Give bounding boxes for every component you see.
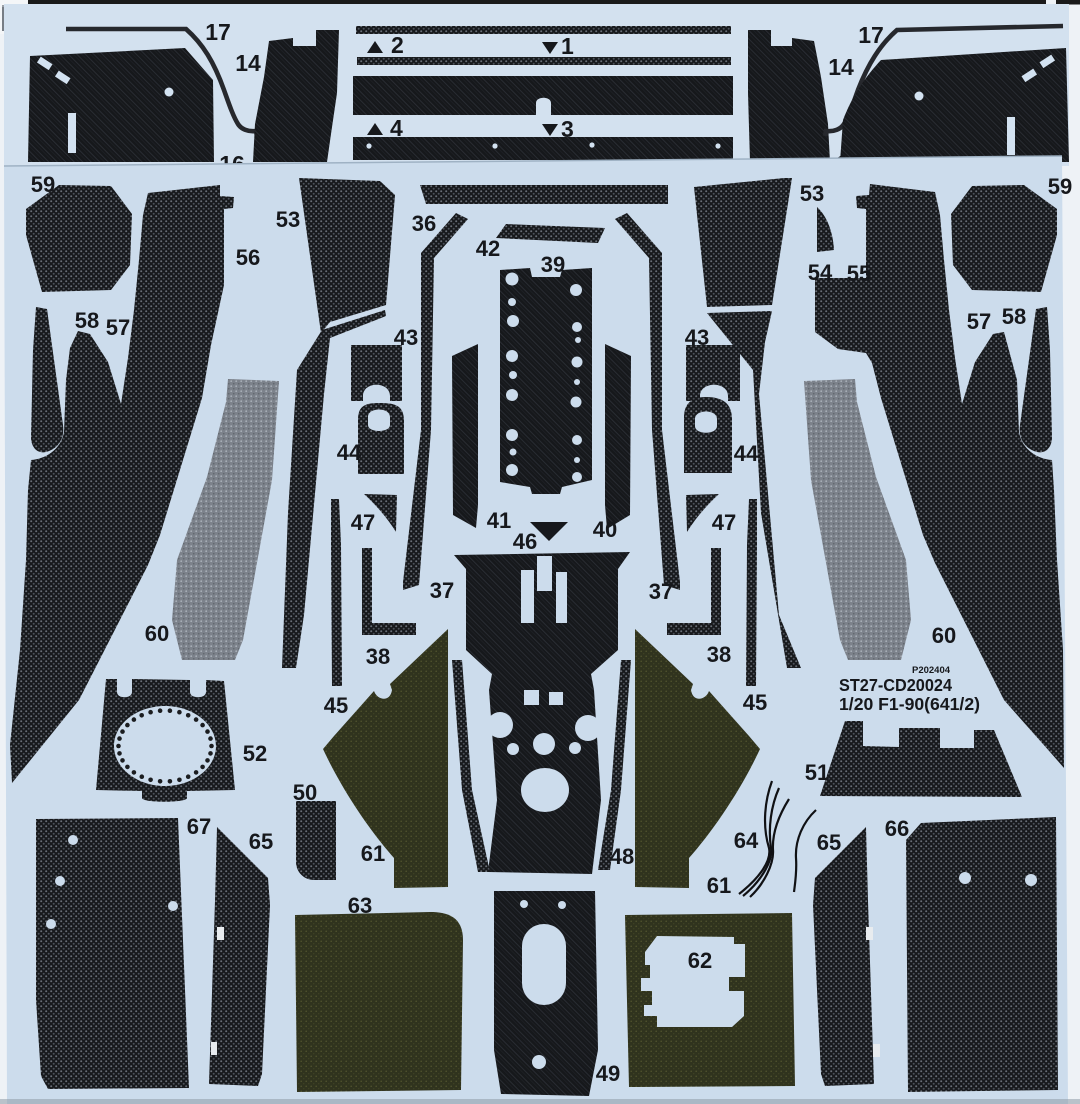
svg-text:57: 57 [967, 309, 991, 334]
svg-text:2: 2 [391, 32, 404, 58]
svg-text:67: 67 [187, 814, 211, 839]
svg-text:58: 58 [75, 308, 99, 333]
svg-text:59: 59 [1048, 174, 1072, 199]
svg-text:42: 42 [476, 236, 500, 261]
svg-text:1: 1 [561, 33, 574, 59]
svg-text:50: 50 [293, 780, 317, 805]
svg-text:17: 17 [205, 19, 231, 45]
svg-text:44: 44 [734, 441, 759, 466]
svg-text:62: 62 [688, 948, 712, 973]
svg-text:53: 53 [276, 207, 300, 232]
svg-text:61: 61 [361, 841, 385, 866]
svg-text:56: 56 [236, 245, 260, 270]
svg-text:60: 60 [145, 621, 169, 646]
svg-text:14: 14 [828, 54, 854, 80]
svg-text:60: 60 [932, 623, 956, 648]
svg-text:44: 44 [337, 440, 362, 465]
svg-text:59: 59 [31, 172, 55, 197]
svg-text:66: 66 [885, 816, 909, 841]
svg-text:ST27-CD20024: ST27-CD20024 [839, 675, 952, 695]
svg-text:52: 52 [243, 741, 267, 766]
svg-text:37: 37 [430, 578, 454, 603]
svg-text:37: 37 [649, 579, 673, 604]
svg-text:3: 3 [561, 116, 574, 142]
svg-text:45: 45 [324, 693, 348, 718]
svg-text:41: 41 [487, 508, 511, 533]
svg-text:55: 55 [847, 261, 871, 286]
svg-text:48: 48 [610, 844, 634, 869]
svg-text:38: 38 [366, 644, 390, 669]
svg-text:40: 40 [593, 517, 617, 542]
svg-text:54: 54 [808, 260, 833, 285]
svg-text:38: 38 [707, 642, 731, 667]
svg-text:61: 61 [707, 873, 731, 898]
svg-text:63: 63 [348, 893, 372, 918]
svg-text:39: 39 [541, 252, 565, 277]
svg-text:14: 14 [235, 50, 261, 76]
svg-text:51: 51 [805, 760, 829, 785]
svg-text:47: 47 [712, 510, 736, 535]
svg-text:4: 4 [390, 115, 403, 141]
svg-text:17: 17 [858, 22, 884, 48]
svg-text:36: 36 [412, 211, 436, 236]
svg-text:47: 47 [351, 510, 375, 535]
svg-text:43: 43 [394, 325, 418, 350]
svg-text:64: 64 [734, 828, 759, 853]
svg-text:43: 43 [685, 325, 709, 350]
svg-text:46: 46 [513, 529, 537, 554]
svg-text:65: 65 [249, 829, 273, 854]
svg-text:1/20 F1-90(641/2): 1/20 F1-90(641/2) [839, 694, 980, 714]
svg-text:45: 45 [743, 690, 767, 715]
svg-text:53: 53 [800, 181, 824, 206]
svg-text:58: 58 [1002, 304, 1026, 329]
svg-text:57: 57 [106, 315, 130, 340]
svg-text:65: 65 [817, 830, 841, 855]
svg-text:49: 49 [596, 1061, 620, 1086]
